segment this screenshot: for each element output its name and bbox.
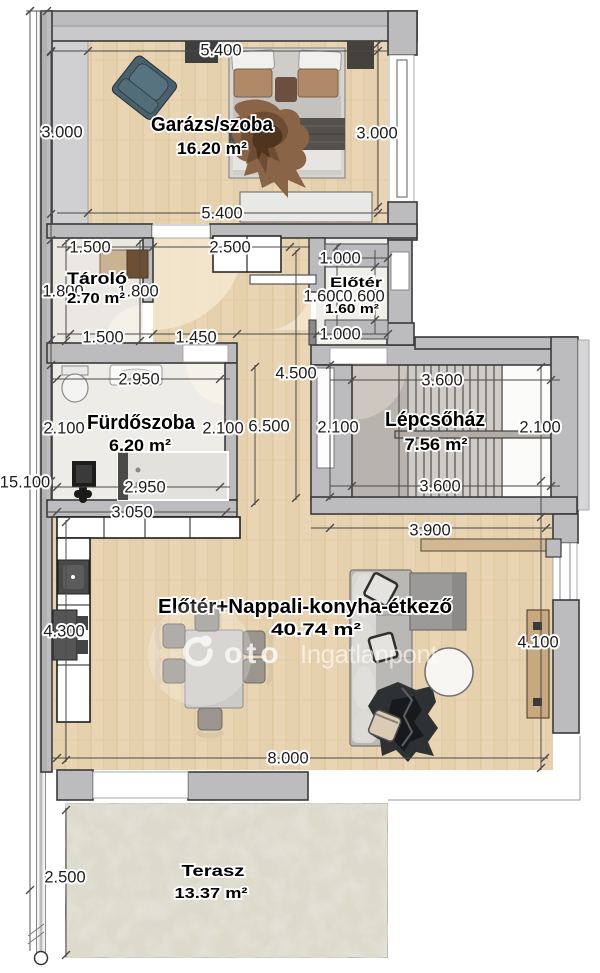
svg-text:2.950: 2.950 [124, 478, 165, 496]
svg-text:1.60 m²: 1.60 m² [325, 301, 380, 316]
svg-text:1.500: 1.500 [69, 238, 110, 256]
svg-text:3.000: 3.000 [356, 124, 397, 142]
svg-text:2.100: 2.100 [519, 418, 560, 436]
svg-text:4.300: 4.300 [43, 622, 84, 640]
svg-text:2.70 m²: 2.70 m² [67, 290, 125, 307]
svg-text:6.20 m²: 6.20 m² [109, 436, 171, 455]
svg-text:1.000: 1.000 [319, 249, 360, 267]
svg-text:Garázs/szoba: Garázs/szoba [151, 114, 274, 136]
svg-text:3.600: 3.600 [419, 477, 460, 495]
svg-text:7.56 m²: 7.56 m² [405, 435, 468, 454]
svg-text:1.450: 1.450 [175, 328, 216, 346]
svg-text:Terasz: Terasz [182, 863, 245, 880]
svg-text:15.100: 15.100 [0, 473, 50, 491]
svg-text:3.000: 3.000 [41, 123, 82, 141]
svg-text:Fürdőszoba: Fürdőszoba [87, 412, 196, 434]
svg-text:Ingatlanpont: Ingatlanpont [300, 639, 438, 669]
svg-text:Előtér: Előtér [330, 274, 383, 290]
svg-text:4.100: 4.100 [517, 633, 558, 651]
svg-text:16.20 m²: 16.20 m² [177, 139, 247, 158]
svg-text:8.000: 8.000 [267, 749, 308, 767]
svg-text:13.37 m²: 13.37 m² [175, 885, 248, 902]
svg-text:2.100: 2.100 [43, 419, 84, 437]
svg-text:3.600: 3.600 [421, 371, 462, 389]
svg-text:2.100: 2.100 [202, 419, 243, 437]
svg-text:Tároló: Tároló [67, 269, 127, 288]
svg-text:2.100: 2.100 [317, 418, 358, 436]
svg-text:5.400: 5.400 [200, 41, 241, 59]
svg-text:Lépcsőház: Lépcsőház [385, 409, 485, 431]
svg-text:oto: oto [224, 637, 283, 670]
svg-text:4.500: 4.500 [275, 364, 316, 382]
svg-text:1.500: 1.500 [82, 328, 123, 346]
svg-text:5.400: 5.400 [201, 204, 242, 222]
svg-text:1.000: 1.000 [319, 325, 360, 343]
svg-text:3.050: 3.050 [111, 503, 152, 521]
svg-text:2.500: 2.500 [209, 238, 250, 256]
svg-text:2.950: 2.950 [118, 370, 159, 388]
svg-text:3.900: 3.900 [409, 521, 450, 539]
svg-text:40.74 m²: 40.74 m² [271, 620, 361, 639]
svg-text:2.500: 2.500 [44, 868, 85, 886]
svg-text:6.500: 6.500 [248, 417, 289, 435]
